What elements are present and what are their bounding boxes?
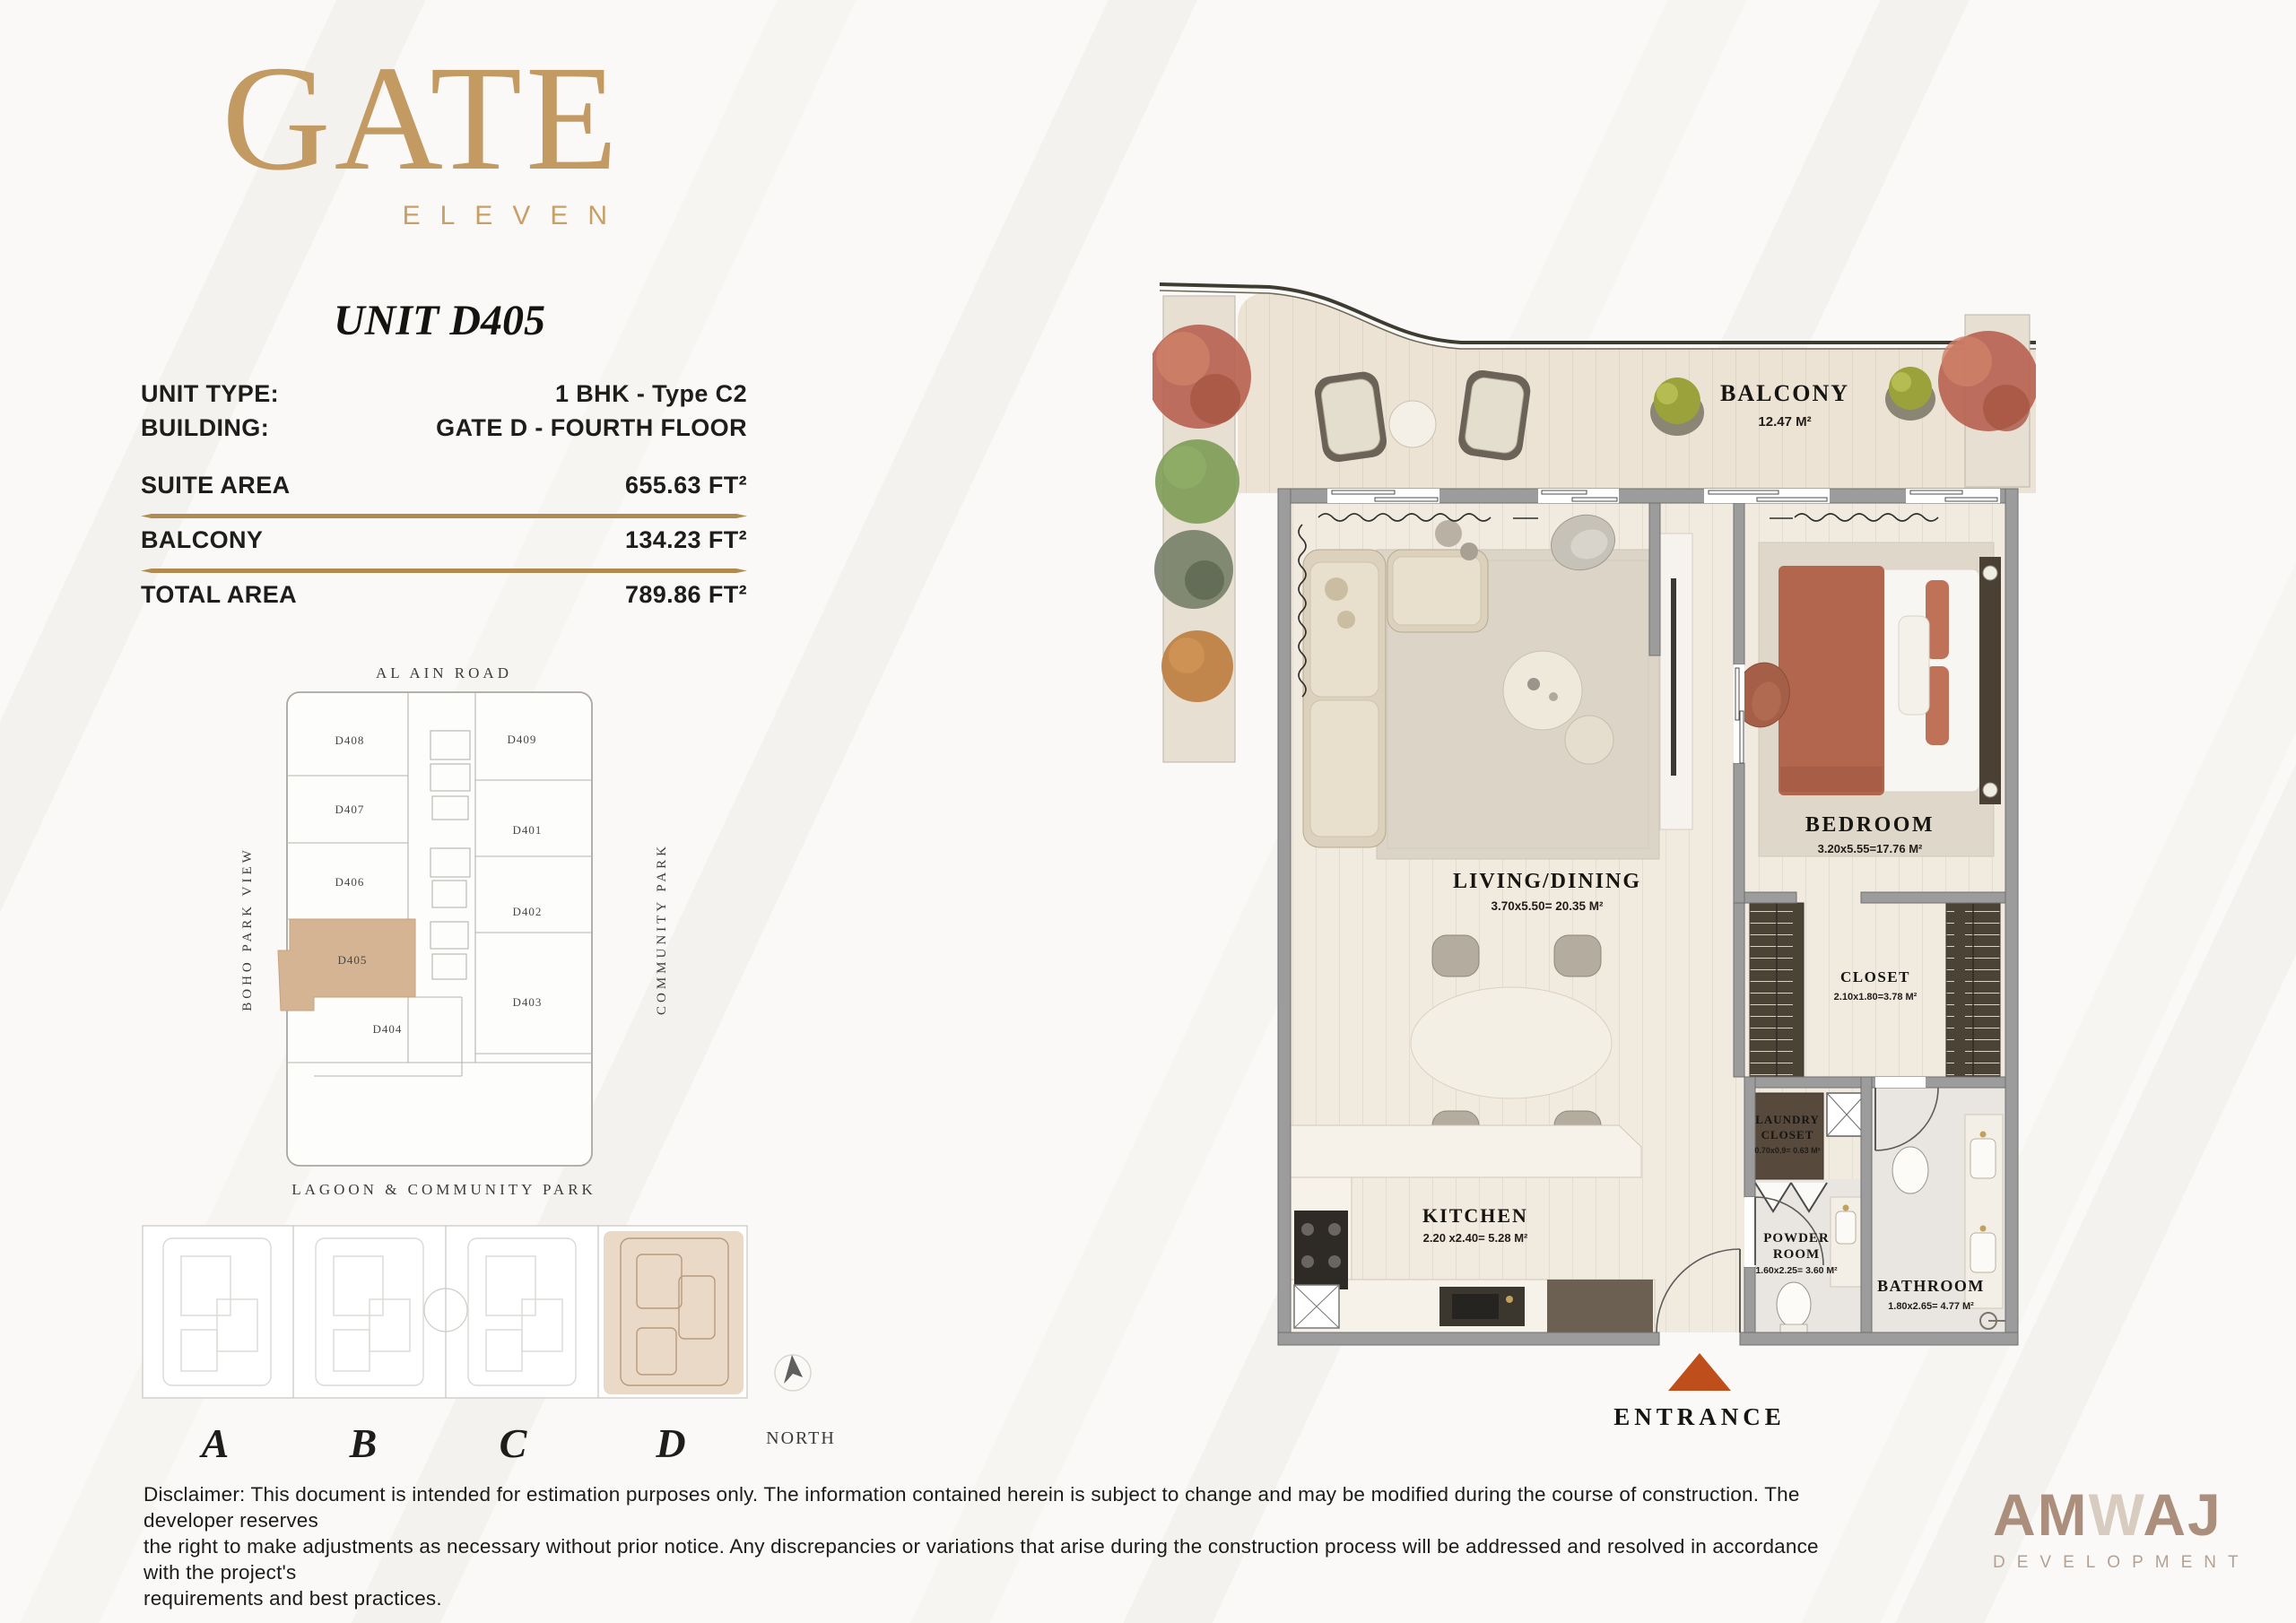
total-area-value: 789.86 FT²: [625, 581, 747, 609]
tree-orange: [1161, 630, 1233, 702]
room-dims-balcony: 12.47 M²: [1758, 414, 1811, 430]
info-row-balcony-area: BALCONY 134.23 FT²: [141, 526, 747, 560]
hall-console: [1660, 534, 1692, 829]
disclaimer-line-2: the right to make adjustments as necessa…: [143, 1533, 1834, 1585]
room-label-bedroom: BEDROOM: [1805, 813, 1935, 837]
info-row-total-area: TOTAL AREA 789.86 FT²: [141, 581, 747, 615]
brand-name: GATE: [211, 43, 632, 194]
room-label-powder-2: ROOM: [1773, 1247, 1820, 1262]
balcony-area-label: BALCONY: [141, 526, 263, 554]
north-arrow-icon: [770, 1348, 816, 1394]
room-label-balcony: BALCONY: [1720, 380, 1849, 406]
gold-divider: [141, 568, 747, 573]
building-letter-c: C: [459, 1419, 567, 1467]
shaft-box: [1294, 1285, 1339, 1328]
keyplan-unit-d408: D408: [335, 733, 365, 747]
disclaimer-line-3: requirements and best practices.: [143, 1585, 1834, 1611]
disclaimer-text: Disclaimer: This document is intended fo…: [143, 1481, 1834, 1611]
room-label-bathroom: BATHROOM: [1877, 1277, 1985, 1295]
room-dims-laundry: 0.70x0.9= 0.63 M²: [1754, 1146, 1820, 1155]
building-letter-a: A: [161, 1419, 269, 1467]
keyplan-unit-d404: D404: [373, 1022, 403, 1036]
keyplan-unit-d403: D403: [513, 995, 543, 1009]
floorplan-brochure-page: GATE ELEVEN UNIT D405 UNIT TYPE: 1 BHK -…: [0, 0, 2296, 1623]
keyplan-unit-d402: D402: [513, 905, 543, 918]
unit-type-value: 1 BHK - Type C2: [555, 380, 747, 408]
building-value: GATE D - FOURTH FLOOR: [436, 414, 747, 442]
info-row-unit-type: UNIT TYPE: 1 BHK - Type C2: [141, 380, 747, 414]
road-label-top: AL AIN ROAD: [376, 664, 512, 681]
developer-subtitle: DEVELOPMENT: [1993, 1553, 2262, 1573]
tree-red: [1152, 325, 1251, 429]
room-label-closet: CLOSET: [1840, 968, 1910, 985]
room-dims-bedroom: 3.20x5.55=17.76 M²: [1818, 842, 1923, 855]
road-label-left: BOHO PARK VIEW: [240, 846, 255, 1011]
room-label-kitchen: KITCHEN: [1422, 1204, 1528, 1227]
road-label-right: COMMUNITY PARK: [655, 843, 669, 1015]
total-area-label: TOTAL AREA: [141, 581, 297, 609]
gold-divider: [141, 514, 747, 518]
tree-dark: [1154, 530, 1233, 609]
brand-logo: GATE ELEVEN: [211, 43, 632, 231]
keyplan-unit-d409: D409: [508, 733, 537, 746]
building-label: BUILDING:: [141, 414, 269, 442]
keyplan-unit-d405: D405: [338, 953, 368, 967]
room-label-laundry-2: CLOSET: [1761, 1128, 1814, 1141]
gas-hob: [1294, 1211, 1348, 1289]
room-dims-kitchen: 2.20 x2.40= 5.28 M²: [1423, 1231, 1528, 1245]
developer-logo: AMWAJ DEVELOPMENT: [1993, 1485, 2262, 1573]
room-dims-bathroom: 1.80x2.65= 4.77 M²: [1888, 1301, 1974, 1312]
lounge-chair: [1313, 369, 1389, 464]
road-label-bottom: LAGOON & COMMUNITY PARK: [291, 1181, 596, 1198]
developer-name-w: W: [2089, 1481, 2144, 1548]
balcony-area-value: 134.23 FT²: [625, 526, 747, 554]
developer-name-aj: AJ: [2143, 1481, 2222, 1548]
tree-green: [1155, 439, 1239, 524]
keyplan-unit-d401: D401: [513, 823, 543, 837]
entrance-arrow-icon: [1668, 1353, 1731, 1391]
room-label-laundry-1: LAUNDRY: [1755, 1113, 1820, 1126]
side-table: [1460, 542, 1478, 560]
info-row-building: BUILDING: GATE D - FOURTH FLOOR: [141, 414, 747, 448]
keyplan-unit-d407: D407: [335, 803, 365, 816]
page-title: UNIT D405: [296, 296, 583, 345]
north-label: NORTH: [756, 1428, 846, 1449]
entrance-label: ENTRANCE: [1613, 1403, 1786, 1430]
suite-area-value: 655.63 FT²: [625, 472, 747, 499]
balcony-side-table: [1389, 401, 1436, 447]
shaft-box: [1827, 1093, 1866, 1136]
headboard: [1979, 557, 2001, 804]
building-selector: [141, 1222, 751, 1402]
building-thumb-d-active[interactable]: [604, 1231, 744, 1394]
unit-type-label: UNIT TYPE:: [141, 380, 279, 408]
key-plan: AL AIN ROAD BOHO PARK VIEW COMMUNITY PAR…: [224, 655, 691, 1228]
building-letter-b: B: [309, 1419, 417, 1467]
unit-info-panel: UNIT TYPE: 1 BHK - Type C2 BUILDING: GAT…: [141, 380, 747, 615]
room-dims-powder: 1.60x2.25= 3.60 M²: [1755, 1265, 1838, 1276]
room-dims-closet: 2.10x1.80=3.78 M²: [1834, 992, 1918, 1002]
info-row-suite-area: SUITE AREA 655.63 FT²: [141, 472, 747, 506]
suite-area-label: SUITE AREA: [141, 472, 291, 499]
room-label-living: LIVING/DINING: [1453, 870, 1641, 893]
lounge-chair: [1457, 369, 1533, 463]
kitchen-sink: [1439, 1287, 1525, 1326]
developer-name-am: AM: [1993, 1481, 2089, 1548]
floor-plan: BALCONY 12.47 M²: [1152, 265, 2036, 1430]
developer-name: AMWAJ: [1993, 1485, 2262, 1544]
building-letter-d: D: [617, 1419, 725, 1467]
side-table: [1435, 520, 1462, 547]
room-label-powder-1: POWDER: [1763, 1231, 1830, 1245]
keyplan-unit-d406: D406: [335, 875, 365, 889]
brand-subtitle: ELEVEN: [211, 201, 632, 231]
left-planter: [1152, 296, 1251, 762]
kitchen-cabinet: [1547, 1280, 1653, 1332]
room-dims-living: 3.70x5.50= 20.35 M²: [1492, 899, 1604, 913]
disclaimer-line-1: Disclaimer: This document is intended fo…: [143, 1481, 1834, 1533]
bed: [1779, 557, 2001, 804]
